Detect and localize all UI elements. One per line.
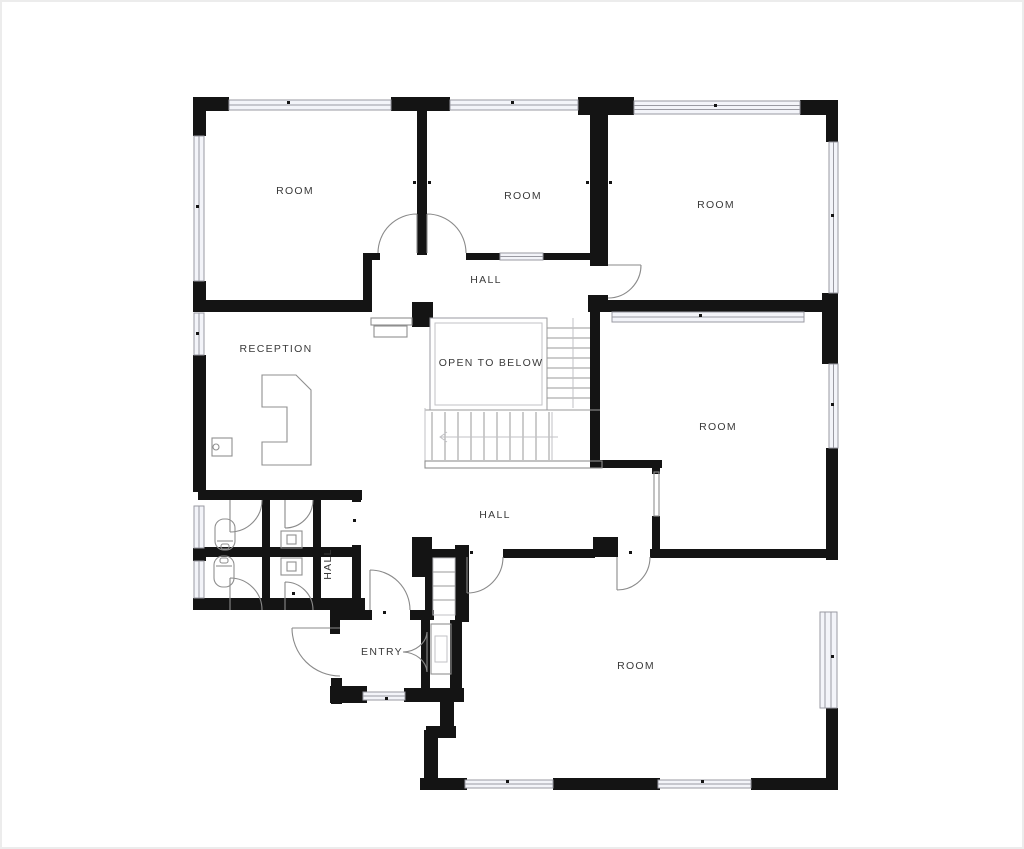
label-room-top-right: ROOM: [697, 199, 735, 211]
label-hall-wc: HALL: [322, 548, 334, 579]
wall-fixture: [374, 326, 407, 337]
wall-cabinet: [212, 438, 232, 456]
stairwell: [371, 318, 602, 468]
door-wc-stall-2: [285, 500, 313, 528]
door-room-top-middle: [427, 214, 466, 253]
door-leaf-middle-right-room: [654, 472, 659, 516]
floor-plan-drawing: [0, 0, 1024, 849]
window: [194, 561, 204, 598]
window: [820, 612, 837, 708]
interior-window: [500, 253, 543, 260]
entry-closet: [431, 624, 451, 674]
reception-desk: [262, 375, 311, 465]
label-room-bottom: ROOM: [617, 660, 655, 672]
dimension-ticks: [196, 101, 834, 783]
door-entry-exterior: [292, 628, 340, 676]
door-room-top-right: [608, 265, 641, 298]
label-entry: ENTRY: [361, 646, 403, 658]
label-reception: RECEPTION: [240, 343, 313, 355]
toilet: [215, 519, 235, 550]
window: [229, 100, 391, 110]
transom-window: [612, 312, 804, 322]
windows: [194, 100, 838, 788]
label-hall-lower: HALL: [479, 509, 510, 521]
window: [634, 101, 800, 114]
floor-plan-canvas: ROOM ROOM ROOM HALL RECEPTION OPEN TO BE…: [0, 0, 1024, 849]
sink: [281, 558, 302, 575]
door-room-top-left: [378, 214, 417, 253]
window: [829, 142, 838, 293]
door-room-bottom-right: [617, 557, 650, 590]
window: [658, 780, 751, 788]
floor-plan-screenshot: ROOM ROOM ROOM HALL RECEPTION OPEN TO BE…: [0, 0, 1024, 849]
sink: [281, 531, 302, 548]
window: [194, 136, 204, 281]
toilet: [214, 556, 234, 587]
label-hall-upper: HALL: [470, 274, 501, 286]
window: [194, 506, 204, 548]
label-room-top-left: ROOM: [276, 185, 314, 197]
railing: [371, 318, 412, 325]
door-hall-to-entry: [370, 570, 410, 610]
label-room-middle-right: ROOM: [699, 421, 737, 433]
entry-sidelight-window: [363, 692, 405, 700]
door-room-bottom-left: [467, 557, 503, 593]
entry-steps: [433, 558, 455, 615]
label-open-to-below: OPEN TO BELOW: [439, 357, 544, 369]
label-room-top-middle: ROOM: [504, 190, 542, 202]
